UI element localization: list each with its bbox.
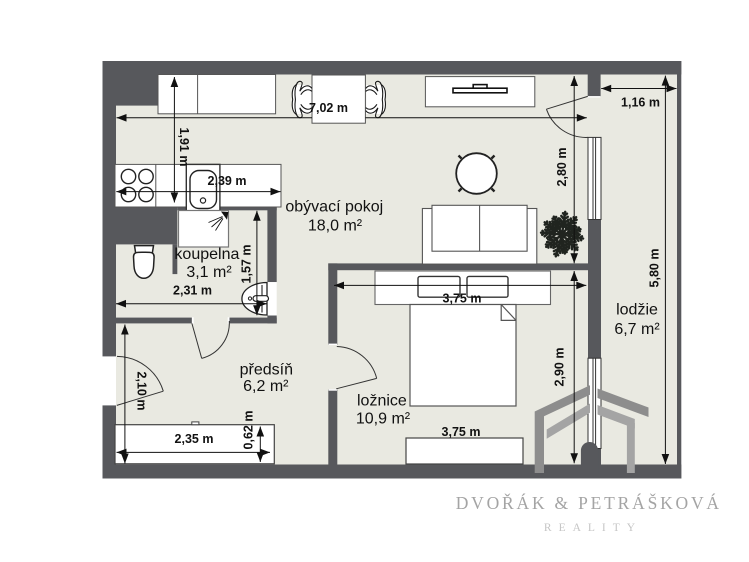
svg-text:2,10 m: 2,10 m — [135, 372, 149, 411]
svg-text:3,75 m: 3,75 m — [442, 425, 481, 439]
svg-text:1,91 m: 1,91 m — [177, 128, 191, 167]
svg-text:5,80 m: 5,80 m — [648, 249, 662, 288]
svg-text:10,9 m²: 10,9 m² — [356, 411, 411, 428]
svg-text:1,57 m: 1,57 m — [240, 245, 254, 284]
svg-text:ložnice: ložnice — [357, 392, 407, 409]
svg-text:lodžie: lodžie — [616, 302, 658, 319]
svg-text:2,31 m: 2,31 m — [173, 284, 212, 298]
svg-text:1,16 m: 1,16 m — [621, 96, 660, 110]
svg-text:18,0 m²: 18,0 m² — [308, 218, 363, 235]
svg-text:REALITY: REALITY — [544, 522, 642, 534]
svg-text:3,75 m: 3,75 m — [443, 292, 482, 306]
svg-text:7,02 m: 7,02 m — [309, 101, 348, 115]
svg-text:2,90 m: 2,90 m — [553, 348, 567, 387]
svg-text:6,2 m²: 6,2 m² — [243, 378, 289, 395]
svg-text:6,7 m²: 6,7 m² — [614, 321, 660, 338]
svg-text:předsíň: předsíň — [240, 362, 293, 379]
svg-text:2,35 m: 2,35 m — [175, 432, 214, 446]
svg-text:obývací pokoj: obývací pokoj — [285, 199, 383, 216]
svg-text:DVOŘÁK & PETRÁŠKOVÁ: DVOŘÁK & PETRÁŠKOVÁ — [456, 493, 722, 513]
svg-text:2,80 m: 2,80 m — [555, 148, 569, 187]
svg-text:3,1 m²: 3,1 m² — [186, 264, 232, 281]
svg-text:0,62 m: 0,62 m — [242, 411, 256, 450]
svg-text:koupelna: koupelna — [174, 246, 239, 263]
svg-text:2,39 m: 2,39 m — [208, 174, 247, 188]
